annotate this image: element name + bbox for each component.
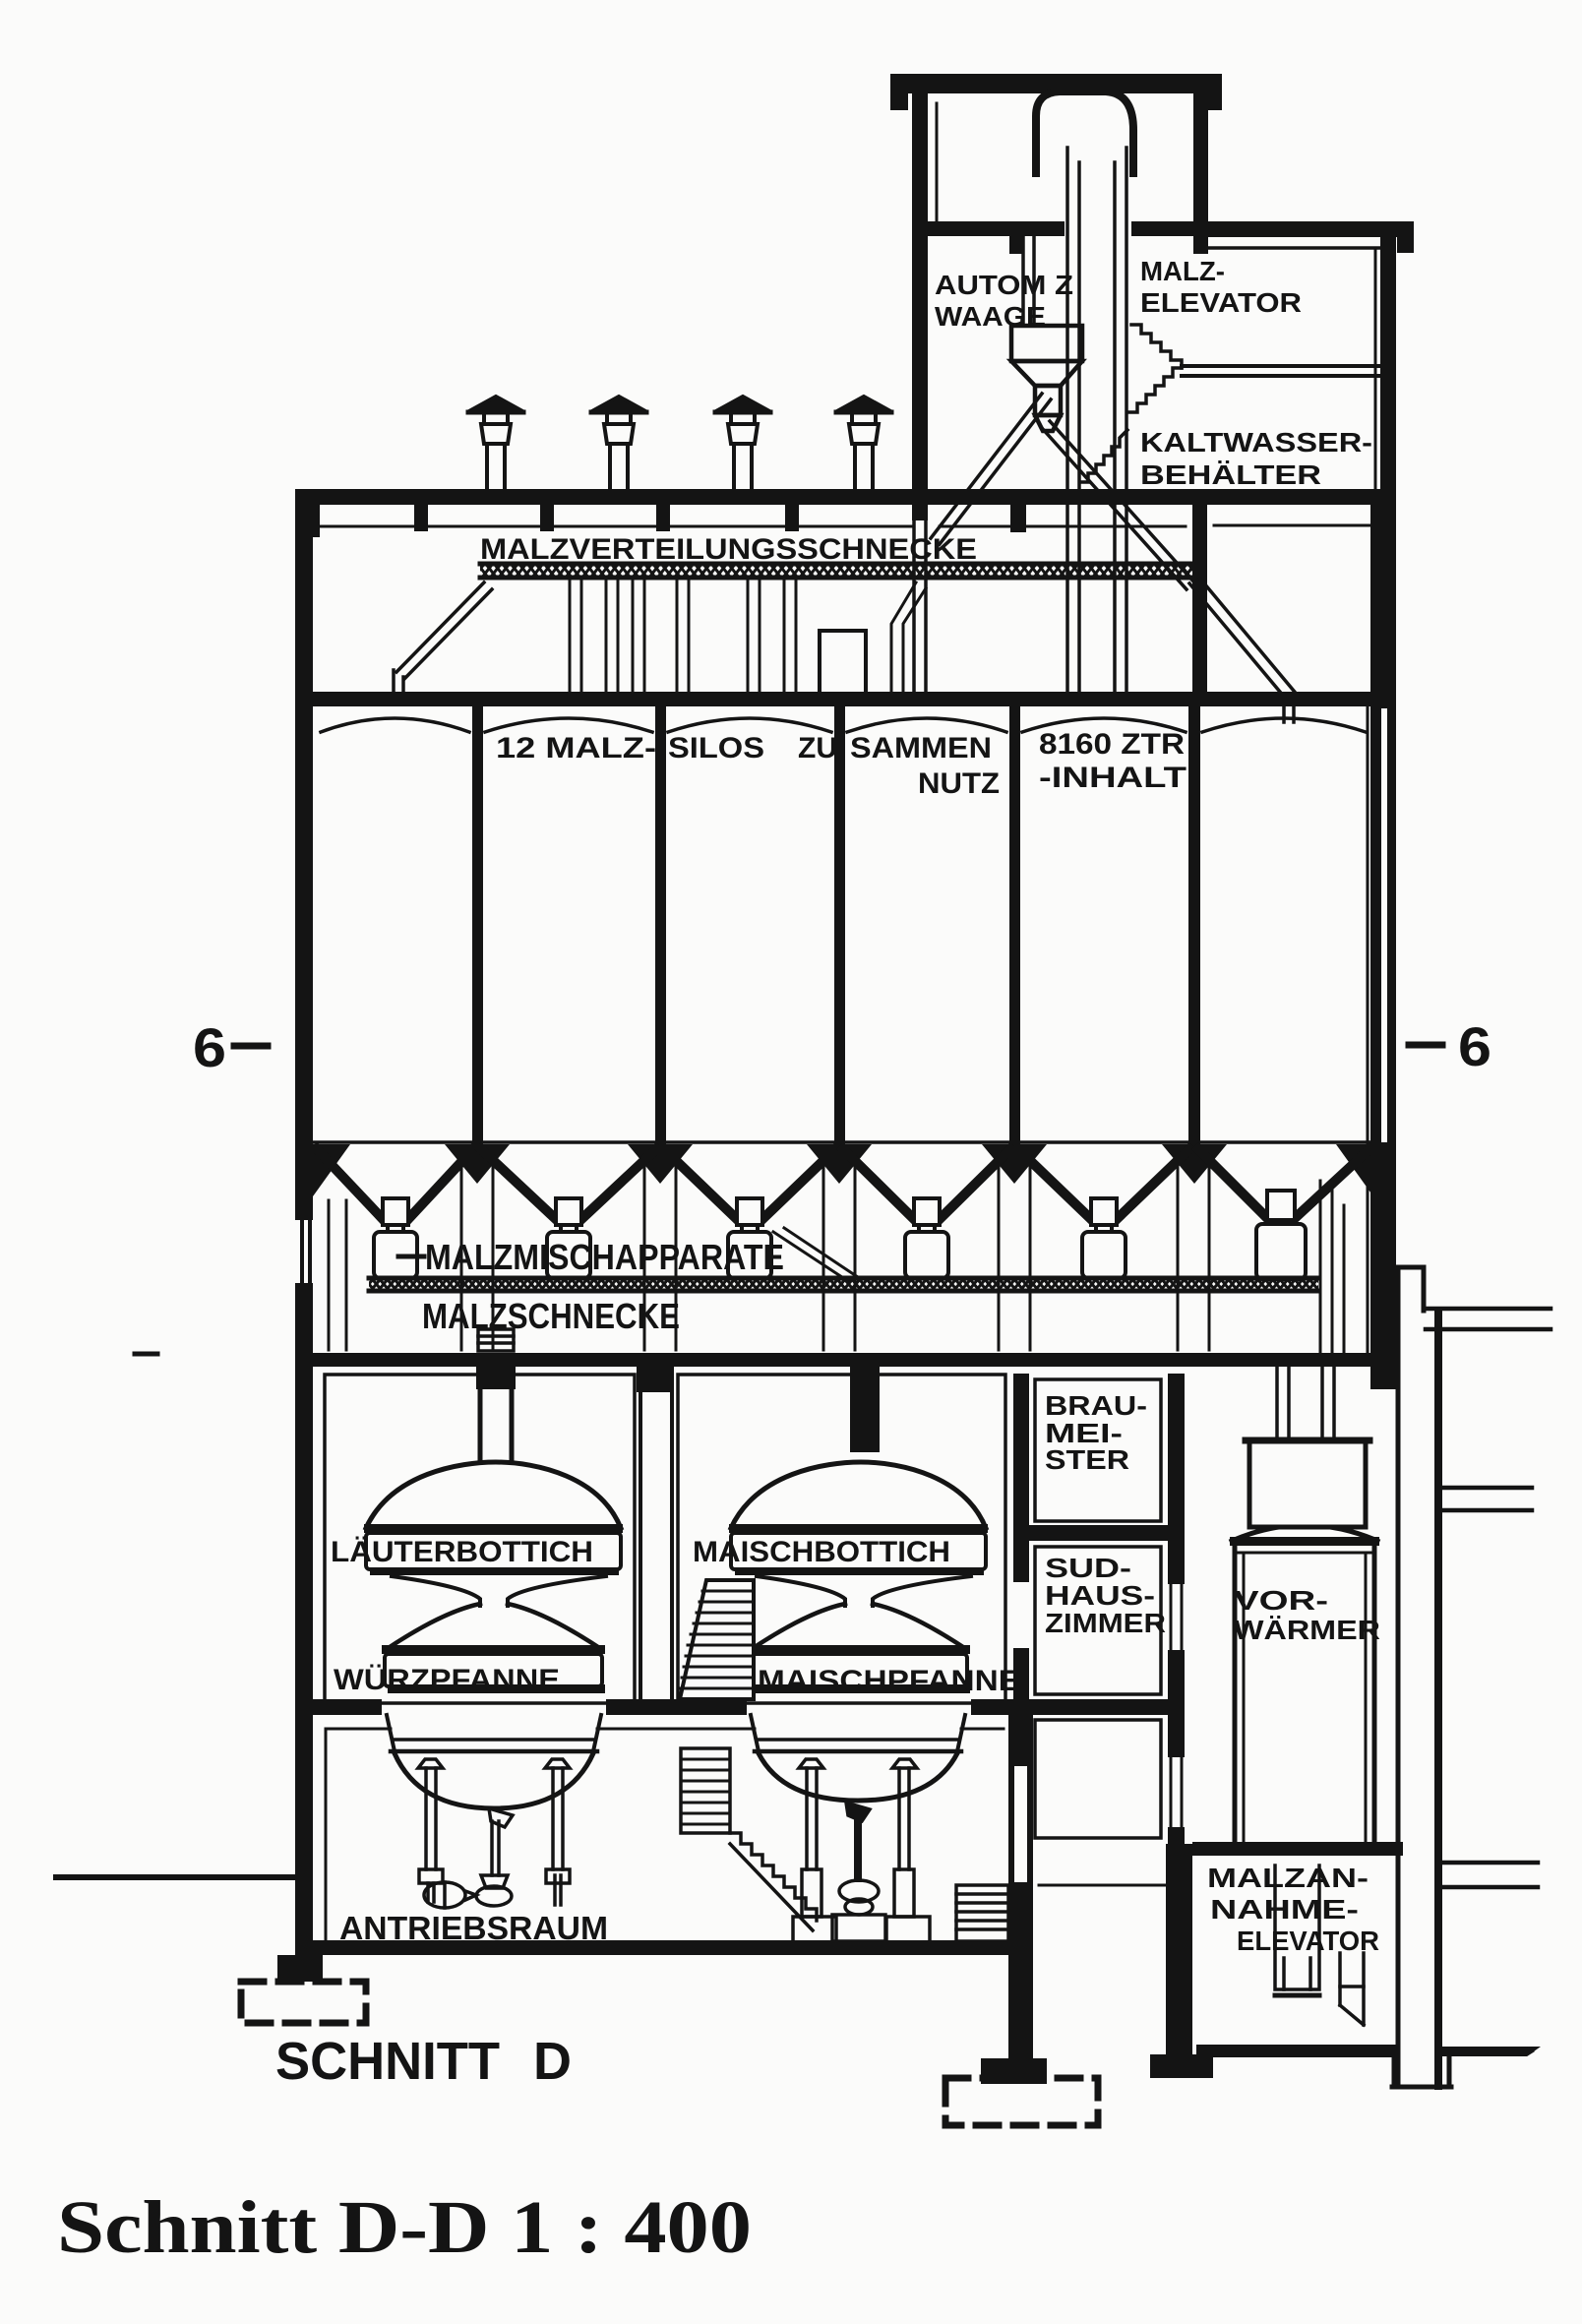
svg-text:VOR-: VOR- <box>1234 1585 1328 1616</box>
svg-text:6: 6 <box>193 1016 226 1078</box>
svg-text:MALZMISCHAPPARATE: MALZMISCHAPPARATE <box>425 1237 784 1277</box>
svg-text:SAMMEN: SAMMEN <box>850 732 992 764</box>
svg-text:NAHME-: NAHME- <box>1210 1894 1359 1925</box>
svg-text:WÜRZPFANNE: WÜRZPFANNE <box>334 1664 560 1696</box>
svg-text:MALZVERTEILUNGSSCHNECKE: MALZVERTEILUNGSSCHNECKE <box>480 533 977 566</box>
svg-text:BEHÄLTER: BEHÄLTER <box>1140 459 1321 490</box>
svg-text:ELEVATOR: ELEVATOR <box>1140 287 1302 318</box>
svg-text:D: D <box>533 2032 572 2091</box>
svg-text:AUTOM Z: AUTOM Z <box>935 270 1073 300</box>
svg-text:ZU: ZU <box>798 732 837 764</box>
svg-text:HAUS-: HAUS- <box>1045 1580 1155 1611</box>
svg-text:MAISCHPFANNE: MAISCHPFANNE <box>758 1665 1020 1697</box>
svg-text:MALZAN-: MALZAN- <box>1207 1863 1369 1893</box>
svg-text:MAISCHBOTTICH: MAISCHBOTTICH <box>693 1536 950 1568</box>
svg-text:Schnitt D-D 1 : 400: Schnitt D-D 1 : 400 <box>57 2186 752 2269</box>
svg-text:12 MALZ-: 12 MALZ- <box>496 732 656 764</box>
svg-text:SCHNITT: SCHNITT <box>275 2032 500 2091</box>
svg-text:8160 ZTR: 8160 ZTR <box>1039 728 1185 761</box>
svg-text:ZIMMER: ZIMMER <box>1045 1608 1166 1638</box>
svg-text:WAAGE: WAAGE <box>935 301 1046 332</box>
svg-text:-INHALT: -INHALT <box>1039 762 1186 794</box>
svg-text:BRAU-: BRAU- <box>1045 1390 1147 1421</box>
svg-text:ELEVATOR: ELEVATOR <box>1237 1926 1379 1956</box>
svg-text:LÄUTERBOTTICH: LÄUTERBOTTICH <box>331 1536 593 1568</box>
svg-text:NUTZ: NUTZ <box>918 767 1000 800</box>
svg-text:MALZ-: MALZ- <box>1140 256 1225 286</box>
svg-text:SUD-: SUD- <box>1045 1553 1131 1583</box>
svg-text:MALZSCHNECKE: MALZSCHNECKE <box>422 1296 680 1336</box>
svg-text:WÄRMER: WÄRMER <box>1234 1615 1380 1645</box>
svg-text:KALTWASSER-: KALTWASSER- <box>1140 427 1372 458</box>
svg-text:STER: STER <box>1045 1444 1129 1475</box>
svg-text:SILOS: SILOS <box>668 732 764 764</box>
svg-text:6: 6 <box>1458 1015 1491 1077</box>
